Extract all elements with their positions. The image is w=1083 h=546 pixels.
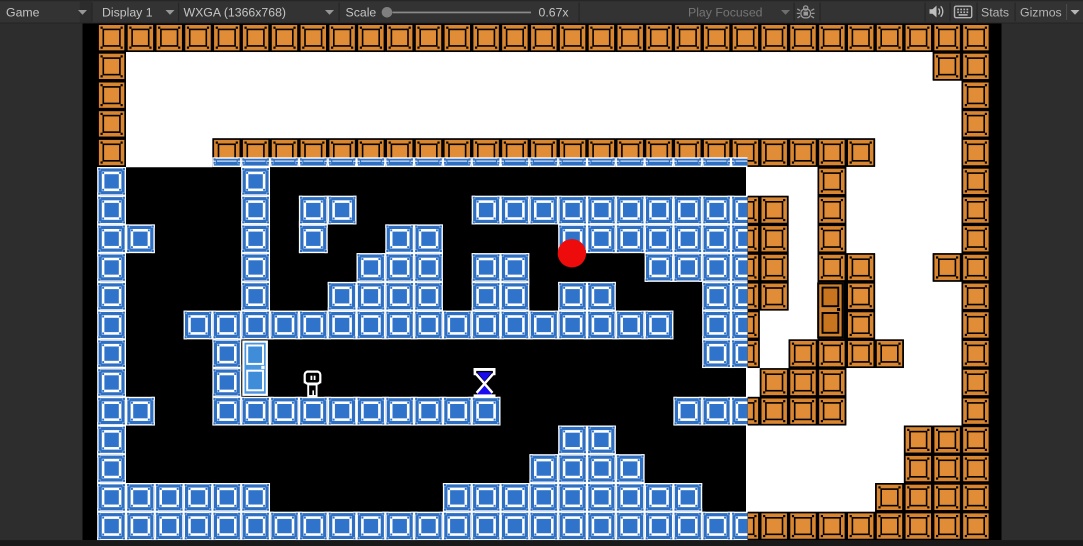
svg-text:0.67x: 0.67x [539,6,570,20]
svg-text:Stats: Stats [981,6,1009,20]
svg-text:Game: Game [6,6,40,20]
svg-text:Play Focused: Play Focused [688,6,763,20]
svg-text:WXGA (1366x768): WXGA (1366x768) [184,6,287,20]
svg-text:Display 1: Display 1 [102,6,153,20]
svg-text:Gizmos: Gizmos [1020,6,1062,20]
svg-text:Scale: Scale [346,6,377,20]
